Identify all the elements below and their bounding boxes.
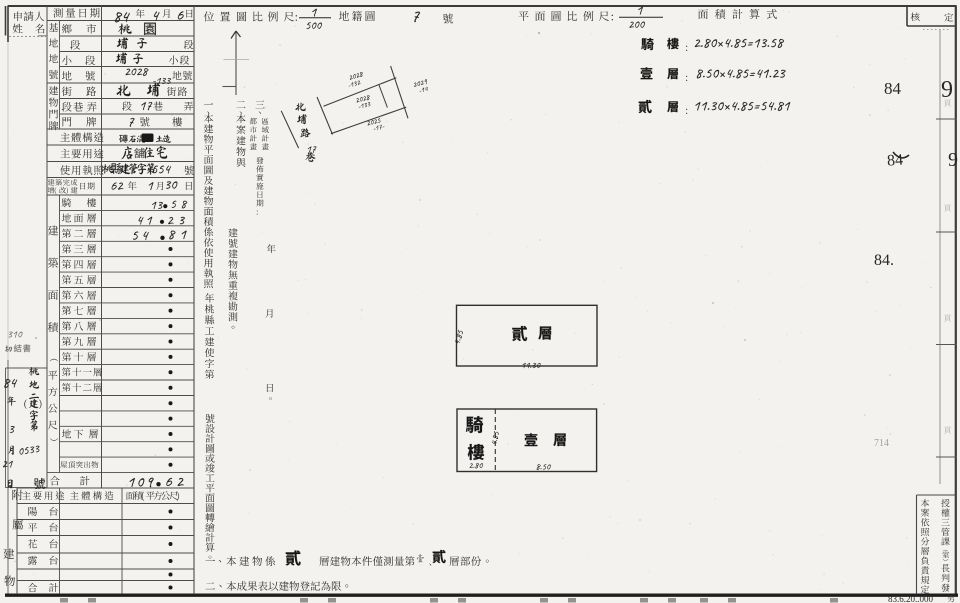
svg-text:84.: 84. [874,252,894,269]
svg-text:9: 9 [941,77,953,103]
svg-text:84: 84 [884,79,902,98]
svg-text:83.6.20..000: 83.6.20..000 [888,594,934,603]
svg-text:714: 714 [874,438,889,449]
svg-text:9: 9 [948,149,958,171]
